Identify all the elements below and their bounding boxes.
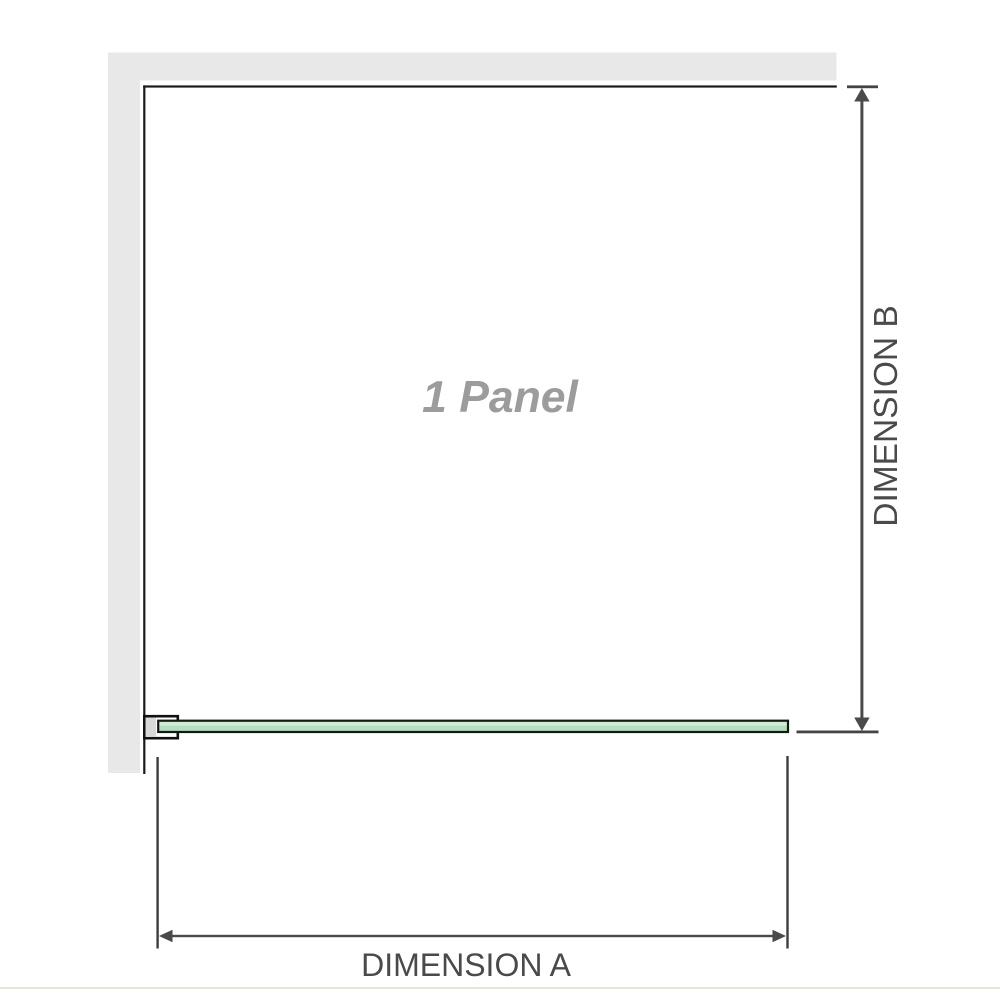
svg-text:DIMENSION A: DIMENSION A [361, 947, 571, 983]
svg-text:DIMENSION B: DIMENSION B [868, 305, 905, 527]
svg-text:1 Panel: 1 Panel [422, 373, 579, 422]
